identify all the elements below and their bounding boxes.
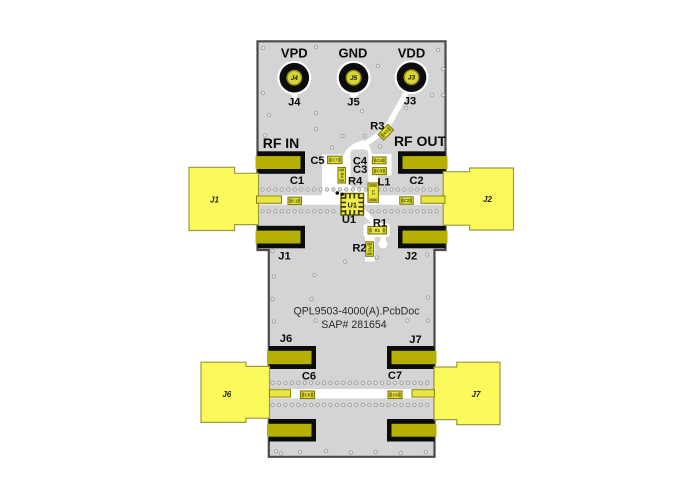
svg-text:R3: R3 xyxy=(370,120,384,132)
svg-text:C3: C3 xyxy=(377,169,383,174)
svg-text:C1: C1 xyxy=(290,175,304,187)
svg-text:VDD: VDD xyxy=(398,46,425,61)
svg-text:R1: R1 xyxy=(373,217,387,229)
svg-text:L1: L1 xyxy=(371,190,376,196)
svg-text:J7: J7 xyxy=(472,390,481,399)
svg-text:R2: R2 xyxy=(352,242,366,254)
svg-text:VPD: VPD xyxy=(281,46,308,61)
svg-text:R4: R4 xyxy=(340,173,345,179)
svg-text:C6: C6 xyxy=(302,370,316,382)
svg-text:QPL9503-4000(A).PcbDoc: QPL9503-4000(A).PcbDoc xyxy=(293,306,420,318)
svg-text:J1: J1 xyxy=(210,196,219,205)
svg-text:SAP# 281654: SAP# 281654 xyxy=(321,319,386,331)
svg-text:J2: J2 xyxy=(405,251,417,263)
svg-text:J1: J1 xyxy=(278,251,290,263)
svg-text:RF IN: RF IN xyxy=(263,135,300,151)
svg-text:C2: C2 xyxy=(409,175,423,187)
svg-text:C1: C1 xyxy=(292,198,298,203)
svg-text:RF OUT: RF OUT xyxy=(394,133,447,149)
svg-text:J5: J5 xyxy=(350,75,358,82)
svg-text:U1: U1 xyxy=(342,214,356,226)
svg-text:J2: J2 xyxy=(483,195,492,204)
svg-text:C7: C7 xyxy=(332,157,338,162)
svg-text:J6: J6 xyxy=(280,333,292,345)
svg-text:J6: J6 xyxy=(222,390,231,399)
svg-text:C7: C7 xyxy=(388,370,402,382)
svg-text:C5: C5 xyxy=(305,392,311,397)
svg-text:J4: J4 xyxy=(291,75,299,82)
svg-text:J5: J5 xyxy=(347,97,359,109)
svg-text:C5: C5 xyxy=(310,155,324,167)
svg-text:C4: C4 xyxy=(377,158,383,163)
svg-text:GND: GND xyxy=(338,46,367,61)
svg-text:J4: J4 xyxy=(288,97,301,109)
svg-text:J3: J3 xyxy=(404,96,416,108)
svg-text:U1: U1 xyxy=(348,201,358,210)
svg-text:C6: C6 xyxy=(392,392,398,397)
svg-text:J7: J7 xyxy=(409,334,421,346)
svg-text:C2: C2 xyxy=(404,198,410,203)
svg-text:L1: L1 xyxy=(377,176,390,188)
svg-text:R2: R2 xyxy=(367,246,372,252)
svg-text:R4: R4 xyxy=(348,175,363,187)
svg-text:J3: J3 xyxy=(408,75,416,82)
